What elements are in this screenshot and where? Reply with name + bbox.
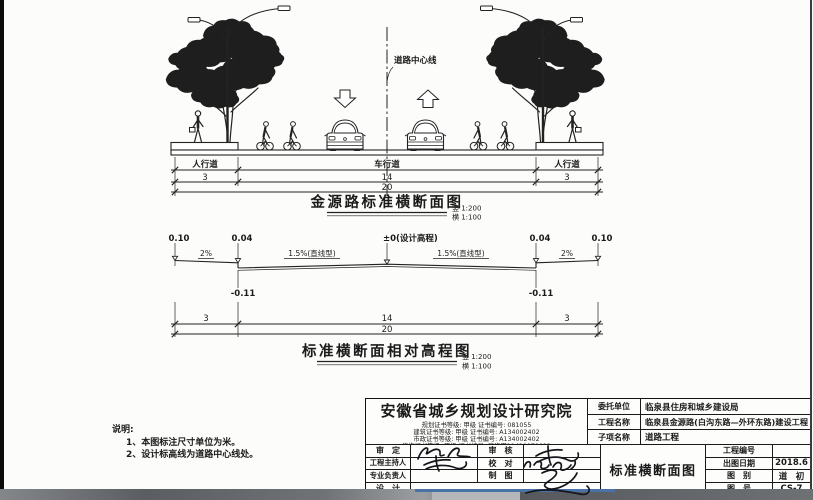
drawing-sheet: 道路中心线 人行道 车行道 人行道 3 14 3 20 (0, 0, 813, 500)
cert-line: 规划证书等级: 甲级 证书编号: 081055 (402, 422, 551, 429)
dim-sidewalk-right: 3 (564, 173, 569, 183)
elev-dim-left: 3 (203, 314, 208, 324)
project-no-label: 工程编号 (706, 445, 773, 458)
category-value: 道 初 (773, 470, 810, 483)
signature-zhitu-sheji (516, 467, 598, 497)
elev-dim-center: 14 (382, 314, 393, 324)
drawing-title: 标准横断面图 (601, 445, 706, 495)
elevation-scale-horizontal: 横 1:100 (462, 362, 491, 371)
subitem-value: 道路工程 (641, 430, 810, 445)
roadside-left (165, 6, 366, 151)
notes: 说明: 1、本图标注尺寸单位为米。 2、设计标高线为道路中心线处。 (112, 424, 258, 462)
scan-left-edge (0, 0, 4, 491)
sign-label-shenhe: 审 核 (478, 445, 524, 458)
category-label: 图 别 (706, 470, 773, 483)
scan-right-edge (810, 0, 812, 500)
dim-total-width: 20 (382, 183, 393, 193)
level-gutter-left: -0.11 (231, 289, 256, 299)
lane-label-sidewalk-right: 人行道 (554, 159, 580, 170)
slope-lane-right: 1.5%(直线型) (437, 248, 484, 258)
level-edge-left: 0.10 (169, 234, 190, 244)
lane-label-roadway: 车行道 (374, 159, 400, 170)
elevation-scale-vertical: 竖 1:200 (462, 352, 491, 361)
road-centerline: 道路中心线 (387, 27, 437, 196)
notes-heading: 说明: (112, 424, 258, 437)
project-label: 工程名称 (588, 415, 641, 430)
sign-label-fuzeren: 专业负责人 (366, 470, 411, 483)
signature-zhuchiren (418, 455, 474, 473)
client-label: 委托单位 (588, 399, 641, 415)
dim-roadway: 14 (382, 173, 393, 183)
scan-bottom-edge (0, 489, 813, 500)
lane-label-sidewalk-left: 人行道 (192, 159, 218, 170)
elevation-title: 标准横断面相对高程图 (301, 342, 472, 360)
section-scale-horizontal: 横 1:100 (452, 213, 481, 222)
title-block: 安徽省城乡规划设计研究院 规划证书等级: 甲级 证书编号: 081055 建筑证… (365, 398, 811, 494)
cert-line: 建筑证书等级: 甲级 证书编号: A134002402 (402, 429, 551, 436)
slope-lane-left: 1.5%(直线型) (288, 248, 335, 258)
section-title: 金源路标准横断面图 (310, 193, 464, 211)
level-edge-right: 0.10 (592, 234, 613, 244)
level-center: ±0(设计高程) (383, 233, 438, 244)
date-value: 2018.6 (773, 458, 810, 471)
level-curb-left: 0.04 (232, 234, 253, 244)
slope-walk-left: 2% (200, 249, 212, 258)
level-curb-right: 0.04 (530, 234, 551, 244)
elevation-diagram: 0.10 0.04 ±0(设计高程) 0.04 0.10 2% 1.5%(直线型… (169, 233, 613, 371)
section-scale-vertical: 竖 1:200 (452, 204, 481, 213)
roadside-right (405, 6, 606, 151)
direction-arrow-down-icon (335, 90, 356, 108)
project-value: 临泉县金源路(白沟东路—外环东路)建设工程 (641, 415, 810, 430)
dim-sidewalk-left: 3 (202, 173, 207, 183)
subitem-label: 子项名称 (588, 430, 641, 445)
slope-walk-right: 2% (561, 249, 573, 258)
scan-bottom-light-patch (432, 492, 520, 500)
centerline-label: 道路中心线 (394, 55, 437, 66)
institute-cell: 安徽省城乡规划设计研究院 规划证书等级: 甲级 证书编号: 081055 建筑证… (366, 399, 588, 445)
section-title-block: 金源路标准横断面图 竖 1:200 横 1:100 (310, 193, 482, 222)
sign-label-zhuchiren: 工程主持人 (366, 458, 411, 471)
project-no-value (773, 445, 810, 458)
institute-name: 安徽省城乡规划设计研究院 (380, 400, 572, 421)
elev-dim-total: 20 (382, 325, 393, 335)
elev-dim-right: 3 (564, 314, 569, 324)
institute-certificates: 规划证书等级: 甲级 证书编号: 081055 建筑证书等级: 甲级 证书编号:… (402, 422, 551, 445)
road-cross-section-drawing: 道路中心线 人行道 车行道 人行道 3 14 3 20 (0, 0, 813, 395)
note-item-2: 2、设计标高线为道路中心线处。 (126, 449, 258, 462)
sign-label-shending: 审 定 (366, 445, 411, 458)
direction-arrow-up-icon (418, 90, 439, 108)
cert-line: 市政证书等级: 甲级 证书编号: A134002402 (402, 436, 551, 443)
date-label: 出图日期 (706, 458, 773, 471)
section-dimensions: 人行道 车行道 人行道 3 14 3 20 (171, 157, 603, 196)
note-item-1: 1、本图标注尺寸单位为米。 (126, 437, 258, 450)
level-gutter-right: -0.11 (529, 289, 554, 299)
client-value: 临泉县住房和城乡建设局 (641, 399, 810, 415)
